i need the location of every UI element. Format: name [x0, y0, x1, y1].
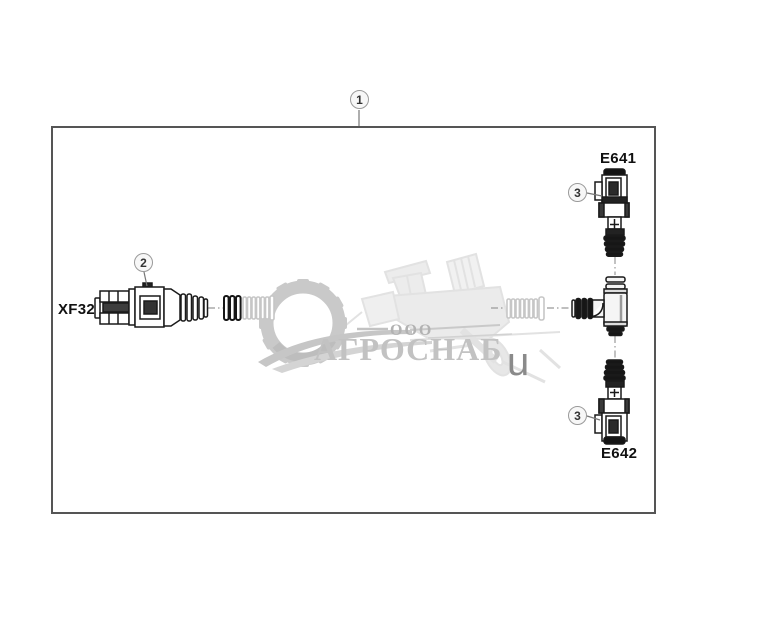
watermark-graphic: ООО АГРОСНАБ u: [258, 254, 560, 384]
callout-balloon-3-bottom[interactable]: 3: [568, 406, 587, 425]
callout-number: 3: [574, 409, 581, 423]
hose-corrugation-light-left: [243, 296, 274, 320]
watermark-org-name: АГРОСНАБ: [314, 331, 502, 367]
connector-label-e642: E642: [601, 445, 637, 462]
callout-balloon-1[interactable]: 1: [350, 90, 369, 109]
connector-e641-drawing: [595, 169, 629, 256]
callout-leader-lines: [144, 110, 602, 420]
callout-number: 3: [574, 186, 581, 200]
parts-diagram-page: ООО АГРОСНАБ u: [0, 0, 781, 641]
connector-label-e641: E641: [600, 150, 636, 167]
tee-fitting-drawing: [572, 277, 627, 336]
hose-corrugation-dark: [224, 296, 241, 320]
hose-corrugation-light-right: [507, 297, 544, 320]
watermark-stray-letter: u: [507, 340, 529, 384]
callout-balloon-3-top[interactable]: 3: [568, 183, 587, 202]
callout-balloon-2[interactable]: 2: [134, 253, 153, 272]
connector-xf32-drawing: [95, 283, 208, 327]
connector-label-xf32: XF32: [58, 301, 95, 318]
connector-e642-drawing: [595, 360, 629, 444]
diagram-art: ООО АГРОСНАБ u: [0, 0, 781, 641]
callout-number: 2: [140, 256, 147, 270]
callout-number: 1: [356, 93, 363, 107]
